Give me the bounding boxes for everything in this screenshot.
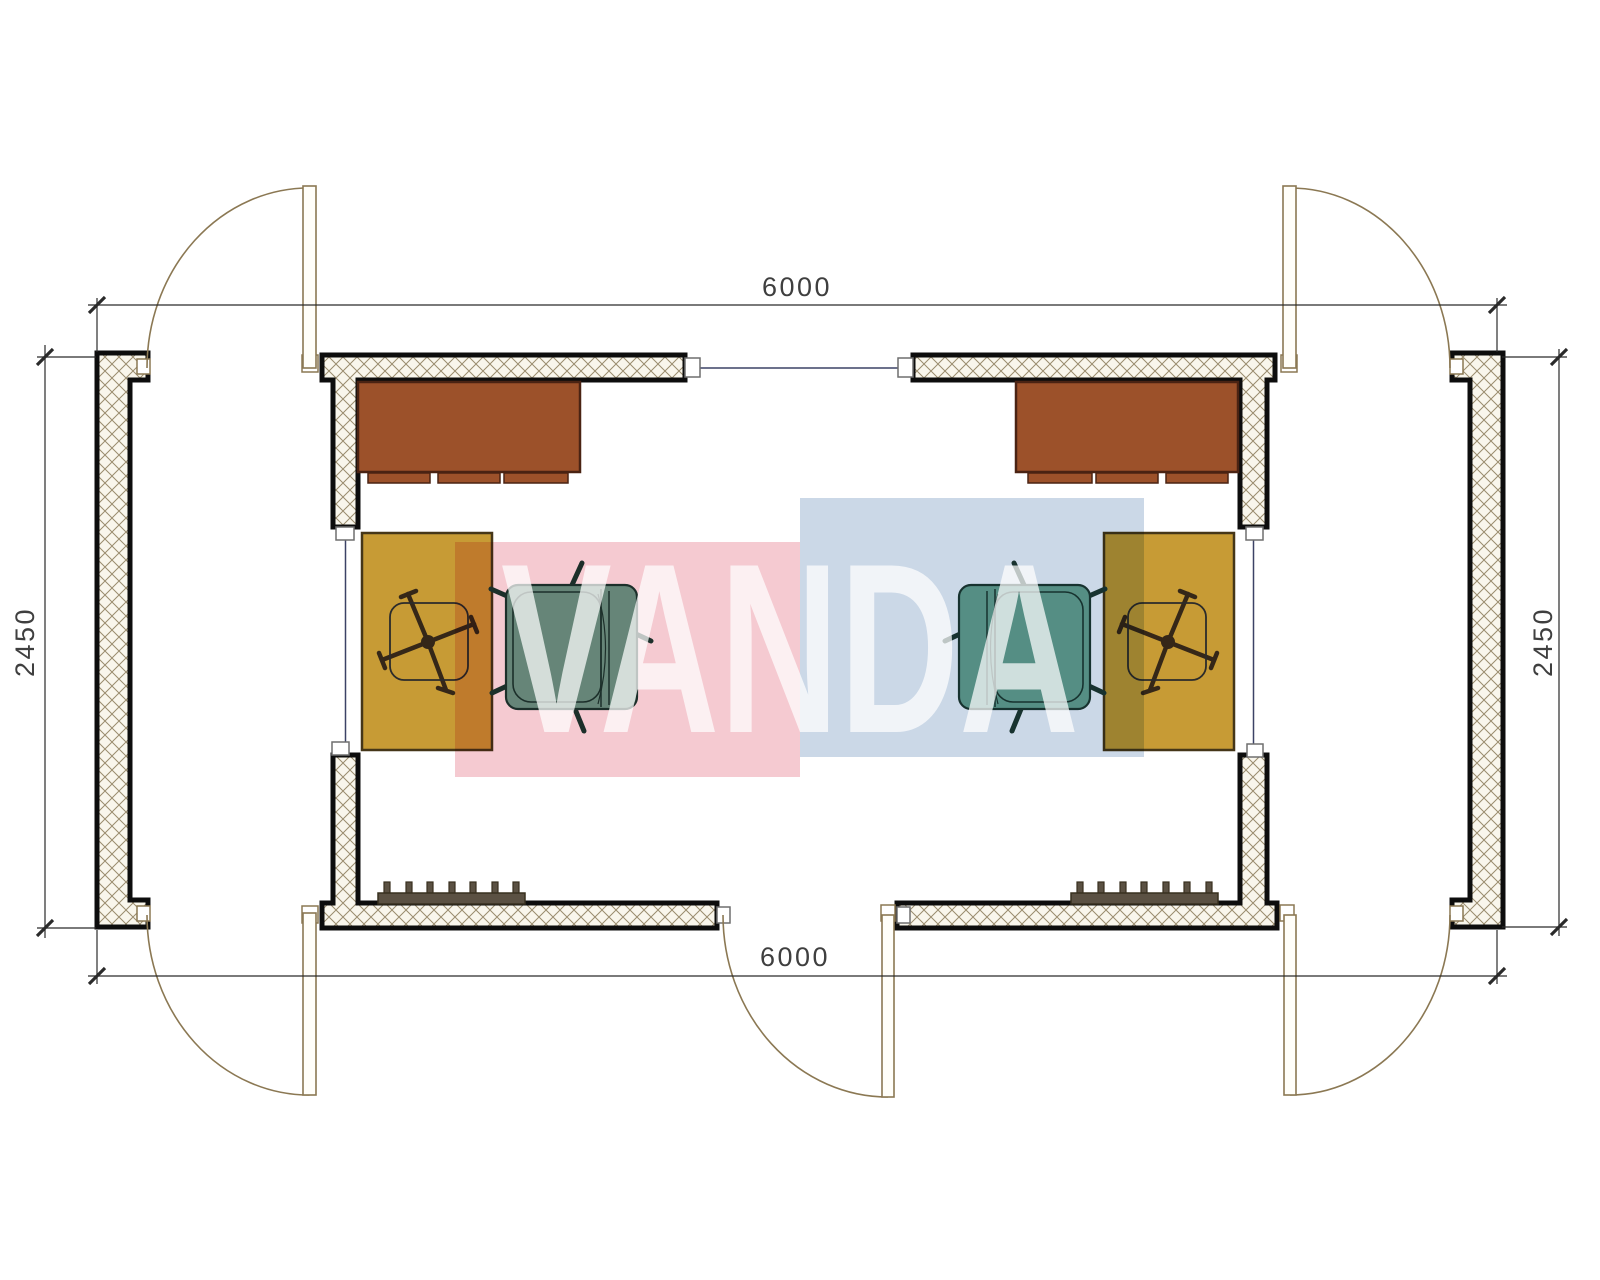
dimension-right-label: 2450 [1528,607,1558,677]
floor-plan-drawing: VANDA 60 [0,0,1600,1280]
dimension-left [37,345,96,938]
right-exterior-wall [1452,353,1503,927]
watermark: VANDA [455,498,1144,784]
door-top-right-leaf [1283,186,1296,368]
watermark-text: VANDA [501,514,1079,784]
door-bottom-right-leaf [1284,915,1296,1095]
dimension-top-label: 6000 [762,272,832,302]
floor-plan-page: VANDA 60 [0,0,1600,1280]
door-top-right-swing-arc [1290,188,1451,368]
door-bottom-left-leaf [303,913,316,1095]
door-bottom-right-swing-arc [1290,915,1450,1095]
dimension-bottom-label: 6000 [760,942,830,972]
door-top-left [147,186,316,368]
dimension-left-label: 2450 [10,607,40,677]
left-exterior-wall [97,353,148,927]
door-bottom-left-swing-arc [147,915,310,1095]
door-bottom-left [147,913,316,1095]
door-top-left-swing-arc [147,188,310,368]
door-bottom-right [1284,915,1450,1095]
door-top-left-leaf [303,186,316,368]
door-top-right [1283,186,1450,368]
door-bottom-middle-leaf [882,915,894,1097]
